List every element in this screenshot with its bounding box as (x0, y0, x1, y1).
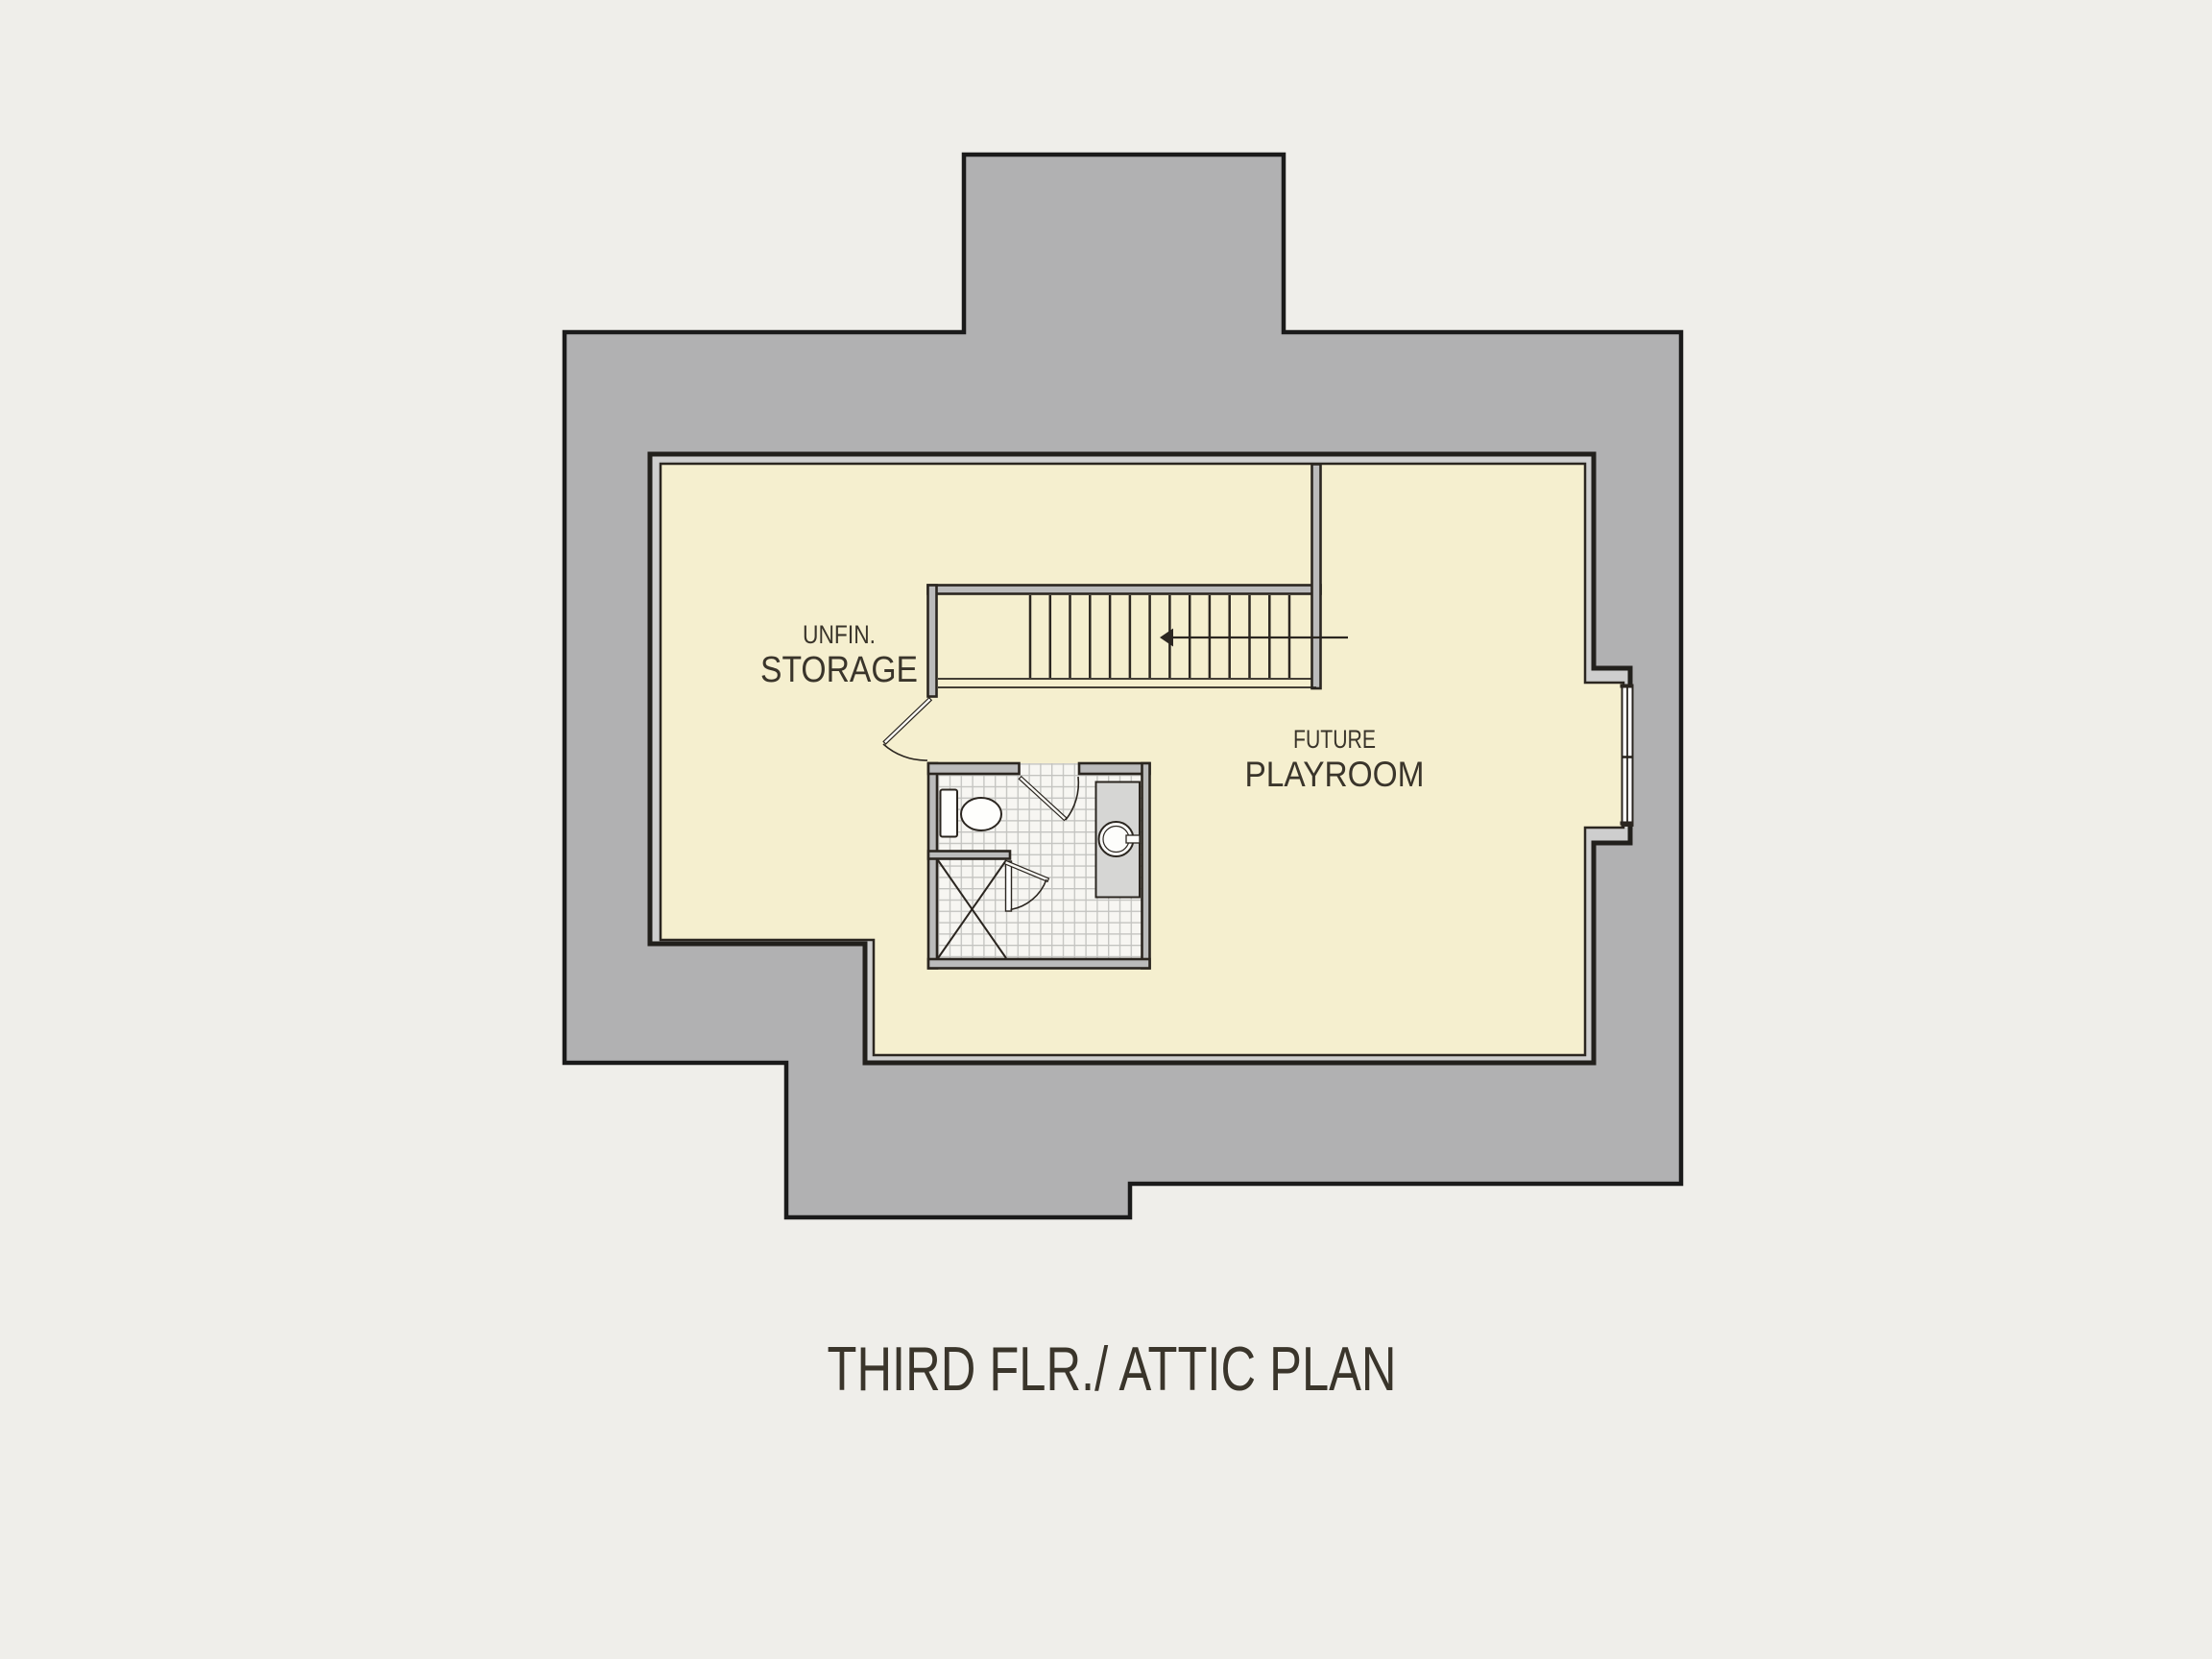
svg-text:THIRD FLR./ ATTIC PLAN: THIRD FLR./ ATTIC PLAN (828, 1334, 1397, 1404)
svg-text:PLAYROOM: PLAYROOM (1245, 755, 1425, 794)
svg-text:FUTURE: FUTURE (1293, 725, 1376, 754)
svg-text:UNFIN.: UNFIN. (803, 620, 876, 649)
svg-text:STORAGE: STORAGE (760, 650, 918, 690)
